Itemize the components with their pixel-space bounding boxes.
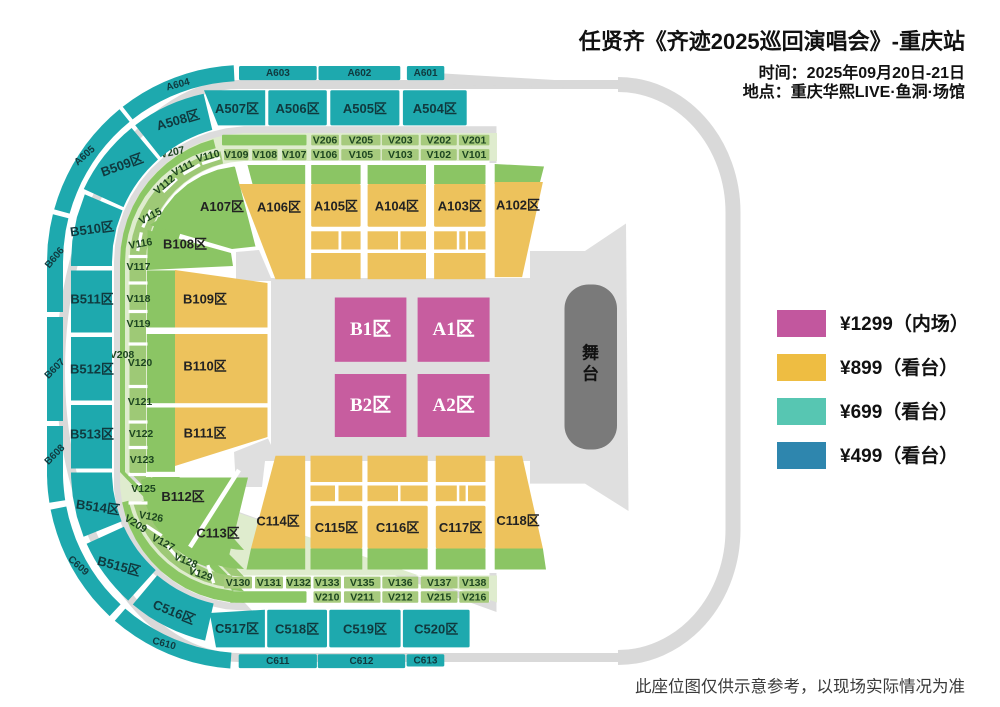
svg-text:V215: V215 <box>427 592 452 604</box>
svg-text:台: 台 <box>582 364 599 384</box>
svg-text:A505区: A505区 <box>343 101 387 116</box>
svg-text:时间：2025年09月20日-21日: 时间：2025年09月20日-21日 <box>759 63 965 82</box>
svg-text:B513区: B513区 <box>70 427 114 442</box>
svg-text:V107: V107 <box>282 149 307 161</box>
svg-text:A1区: A1区 <box>432 319 474 340</box>
svg-text:舞: 舞 <box>582 343 599 363</box>
svg-text:此座位图仅供示意参考，以现场实际情况为准: 此座位图仅供示意参考，以现场实际情况为准 <box>635 677 965 696</box>
svg-text:V135: V135 <box>350 577 375 589</box>
svg-text:A504区: A504区 <box>413 101 457 116</box>
svg-text:V109: V109 <box>224 149 249 161</box>
svg-text:V212: V212 <box>388 592 413 604</box>
svg-text:V108: V108 <box>253 149 278 161</box>
svg-text:¥699（看台）: ¥699（看台） <box>840 400 958 423</box>
svg-text:C611: C611 <box>266 656 290 667</box>
svg-text:V106: V106 <box>313 149 338 161</box>
svg-text:¥1299（内场）: ¥1299（内场） <box>840 312 969 335</box>
svg-text:V208: V208 <box>110 349 135 361</box>
svg-text:A102区: A102区 <box>496 198 540 213</box>
svg-text:C613: C613 <box>414 655 438 666</box>
svg-text:V101: V101 <box>462 149 487 161</box>
svg-text:A104区: A104区 <box>375 198 419 213</box>
svg-text:V205: V205 <box>349 135 374 147</box>
svg-text:¥499（看台）: ¥499（看台） <box>840 444 958 467</box>
svg-text:V130: V130 <box>226 577 251 589</box>
svg-text:C517区: C517区 <box>215 621 259 636</box>
svg-text:A506区: A506区 <box>276 101 320 116</box>
svg-text:V138: V138 <box>462 577 487 589</box>
svg-text:V122: V122 <box>129 428 154 440</box>
svg-text:V137: V137 <box>427 577 452 589</box>
svg-text:A602: A602 <box>347 68 371 79</box>
svg-text:V105: V105 <box>349 149 374 161</box>
svg-text:A103区: A103区 <box>438 198 482 213</box>
svg-text:B512区: B512区 <box>70 362 114 377</box>
svg-text:V216: V216 <box>462 592 487 604</box>
svg-text:V103: V103 <box>388 149 413 161</box>
svg-text:V210: V210 <box>315 592 340 604</box>
svg-text:V202: V202 <box>427 135 452 147</box>
svg-text:B111区: B111区 <box>184 426 227 441</box>
svg-text:V102: V102 <box>427 149 452 161</box>
svg-text:B110区: B110区 <box>183 359 226 374</box>
svg-text:V119: V119 <box>127 318 151 330</box>
svg-text:A107区: A107区 <box>200 199 244 214</box>
svg-text:A106区: A106区 <box>257 200 301 215</box>
svg-text:C114区: C114区 <box>256 514 299 529</box>
svg-text:A603: A603 <box>266 68 290 79</box>
svg-text:V203: V203 <box>388 135 413 147</box>
svg-text:地点：重庆华熙LIVE·鱼洞·场馆: 地点：重庆华熙LIVE·鱼洞·场馆 <box>743 82 965 101</box>
svg-text:V133: V133 <box>315 577 340 589</box>
svg-text:任贤齐《齐迹2025巡回演唱会》-重庆站: 任贤齐《齐迹2025巡回演唱会》-重庆站 <box>578 29 965 54</box>
svg-text:C519区: C519区 <box>343 622 387 637</box>
svg-text:V206: V206 <box>313 135 338 147</box>
svg-text:B108区: B108区 <box>163 237 207 252</box>
svg-text:A507区: A507区 <box>215 101 259 116</box>
svg-text:V118: V118 <box>127 293 151 305</box>
svg-text:V132: V132 <box>286 577 311 589</box>
svg-text:B109区: B109区 <box>183 292 227 307</box>
svg-text:C118区: C118区 <box>496 513 539 528</box>
svg-text:A2区: A2区 <box>432 395 474 416</box>
svg-text:A601: A601 <box>414 68 438 79</box>
svg-text:C117区: C117区 <box>439 520 482 535</box>
svg-text:¥899（看台）: ¥899（看台） <box>840 356 958 379</box>
svg-text:C116区: C116区 <box>376 520 419 535</box>
svg-text:B511区: B511区 <box>70 292 113 307</box>
svg-text:V136: V136 <box>388 577 413 589</box>
svg-text:V117: V117 <box>127 261 151 273</box>
svg-text:V131: V131 <box>257 577 282 589</box>
svg-text:C612: C612 <box>350 656 374 667</box>
svg-text:C518区: C518区 <box>275 622 319 637</box>
svg-text:V201: V201 <box>462 135 487 147</box>
svg-text:V121: V121 <box>128 396 153 408</box>
svg-text:V125: V125 <box>131 483 156 495</box>
svg-text:B1区: B1区 <box>350 319 391 340</box>
svg-text:C113区: C113区 <box>196 526 239 541</box>
svg-text:B2区: B2区 <box>350 395 391 416</box>
svg-text:C520区: C520区 <box>414 622 458 637</box>
svg-text:V211: V211 <box>350 592 374 604</box>
svg-text:B112区: B112区 <box>161 489 204 504</box>
svg-text:V123: V123 <box>130 454 155 466</box>
svg-text:A105区: A105区 <box>314 198 358 213</box>
svg-text:C115区: C115区 <box>315 520 358 535</box>
